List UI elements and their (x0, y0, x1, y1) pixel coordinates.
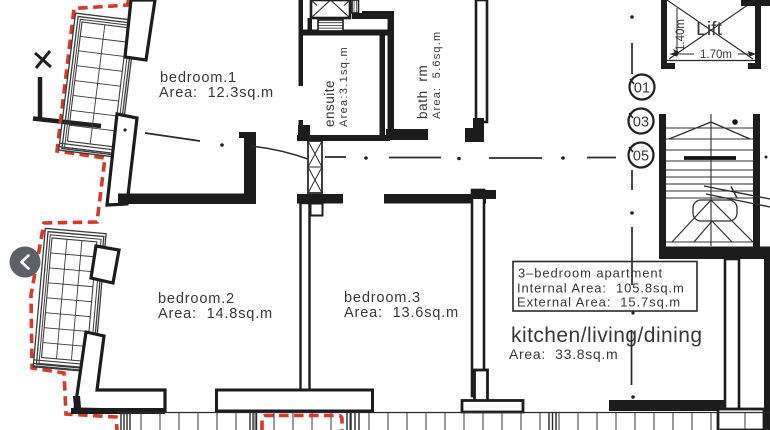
svg-text:Internal Area: 105.8sq.m: Internal Area: 105.8sq.m (517, 281, 685, 296)
svg-text:Area: 14.8sq.m: Area: 14.8sq.m (158, 306, 273, 322)
svg-text:1.40m: 1.40m (675, 19, 687, 51)
svg-text:Lift: Lift (696, 18, 723, 40)
svg-text:bedroom.3: bedroom.3 (344, 290, 421, 306)
svg-text:Area: 5.6sq.m: Area: 5.6sq.m (431, 31, 443, 119)
svg-text:bedroom.1: bedroom.1 (160, 70, 237, 86)
svg-text:ensuite: ensuite (322, 80, 337, 127)
svg-text:05: 05 (633, 149, 649, 165)
svg-text:kitchen/living/dining: kitchen/living/dining (511, 324, 703, 347)
svg-text:03: 03 (633, 115, 649, 131)
svg-text:Area: 12.3sq.m: Area: 12.3sq.m (159, 85, 274, 101)
svg-text:External Area: 15.7sq.m: External Area: 15.7sq.m (517, 295, 681, 310)
svg-text:01: 01 (634, 81, 650, 97)
svg-text:bedroom.2: bedroom.2 (158, 291, 235, 307)
svg-text:bath rm: bath rm (415, 65, 430, 119)
svg-text:Area: 13.6sq.m: Area: 13.6sq.m (344, 305, 459, 321)
svg-text:Area: 33.8sq.m: Area: 33.8sq.m (509, 346, 618, 362)
svg-text:3–bedroom apartment: 3–bedroom apartment (518, 266, 663, 281)
svg-text:1.70m: 1.70m (700, 49, 732, 61)
svg-text:Area:3.1sq.m: Area:3.1sq.m (338, 46, 350, 127)
